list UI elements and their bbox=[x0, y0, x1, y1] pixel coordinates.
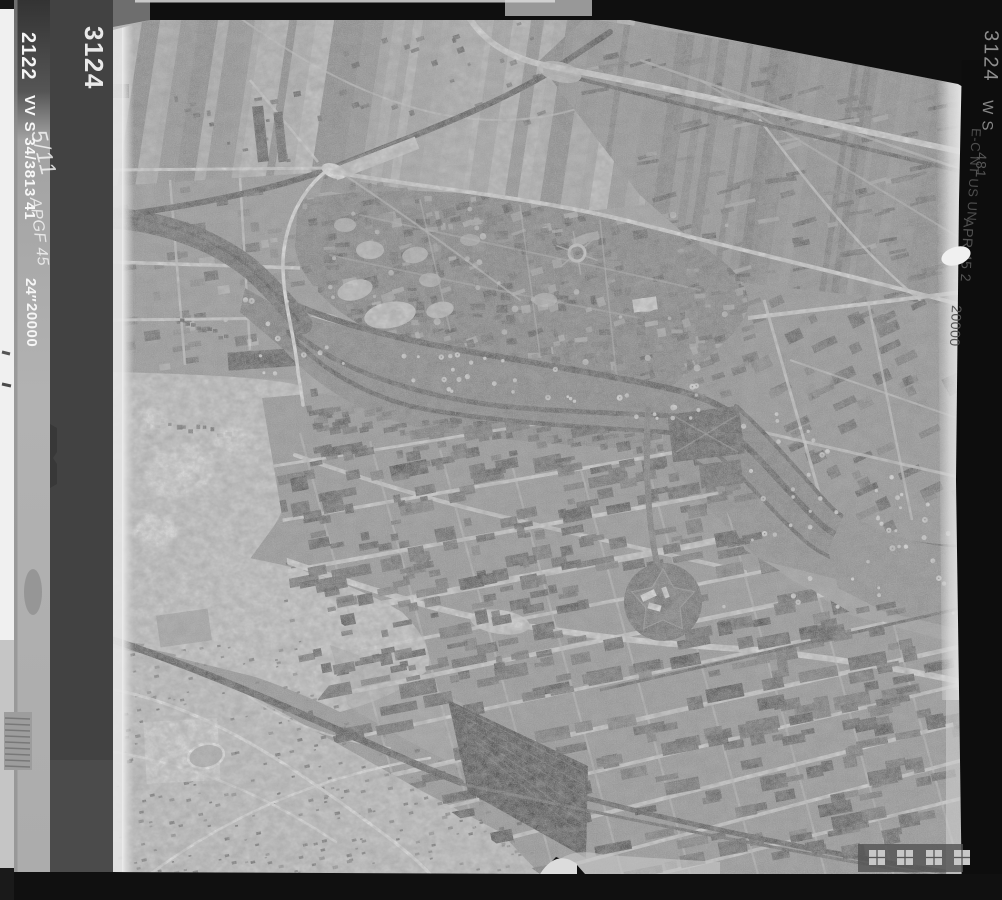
svg-text:3124: 3124 bbox=[979, 30, 1002, 83]
svg-text:2122: 2122 bbox=[17, 32, 39, 81]
svg-text:20000: 20000 bbox=[947, 305, 965, 347]
svg-text:24″: 24″ bbox=[22, 278, 39, 302]
svg-text:481: 481 bbox=[973, 152, 990, 179]
svg-text:W S: W S bbox=[978, 100, 996, 132]
svg-text:20000: 20000 bbox=[23, 303, 40, 347]
svg-text:3124: 3124 bbox=[79, 26, 109, 90]
